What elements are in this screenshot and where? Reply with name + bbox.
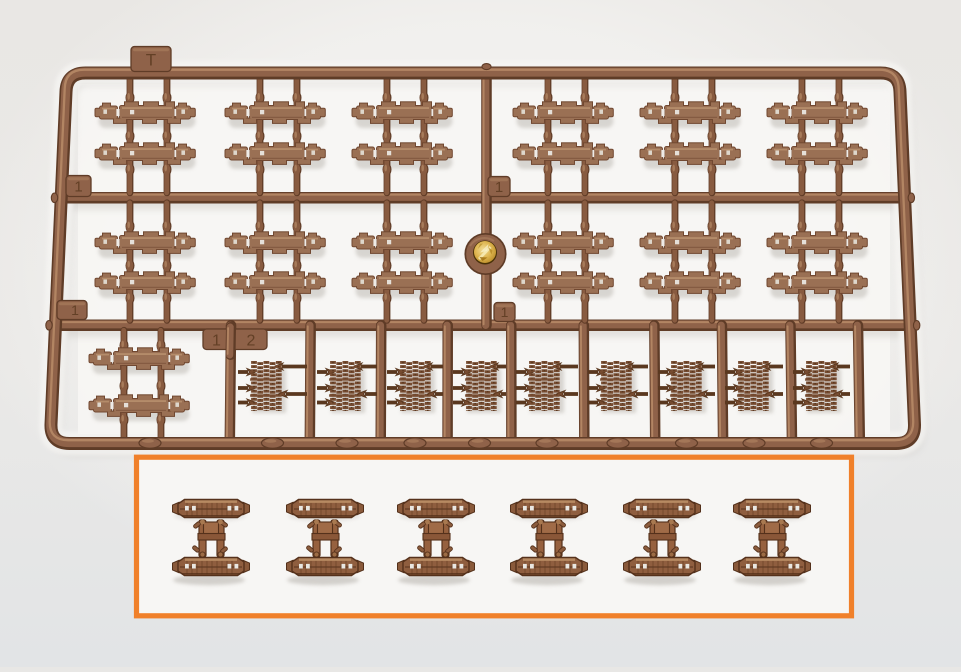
svg-text:1: 1: [74, 179, 82, 196]
svg-text:1: 1: [212, 333, 221, 350]
svg-text:1: 1: [71, 302, 79, 318]
svg-text:1: 1: [501, 304, 509, 320]
svg-text:T: T: [146, 50, 156, 69]
svg-text:2: 2: [247, 333, 256, 350]
svg-text:1: 1: [495, 179, 503, 196]
